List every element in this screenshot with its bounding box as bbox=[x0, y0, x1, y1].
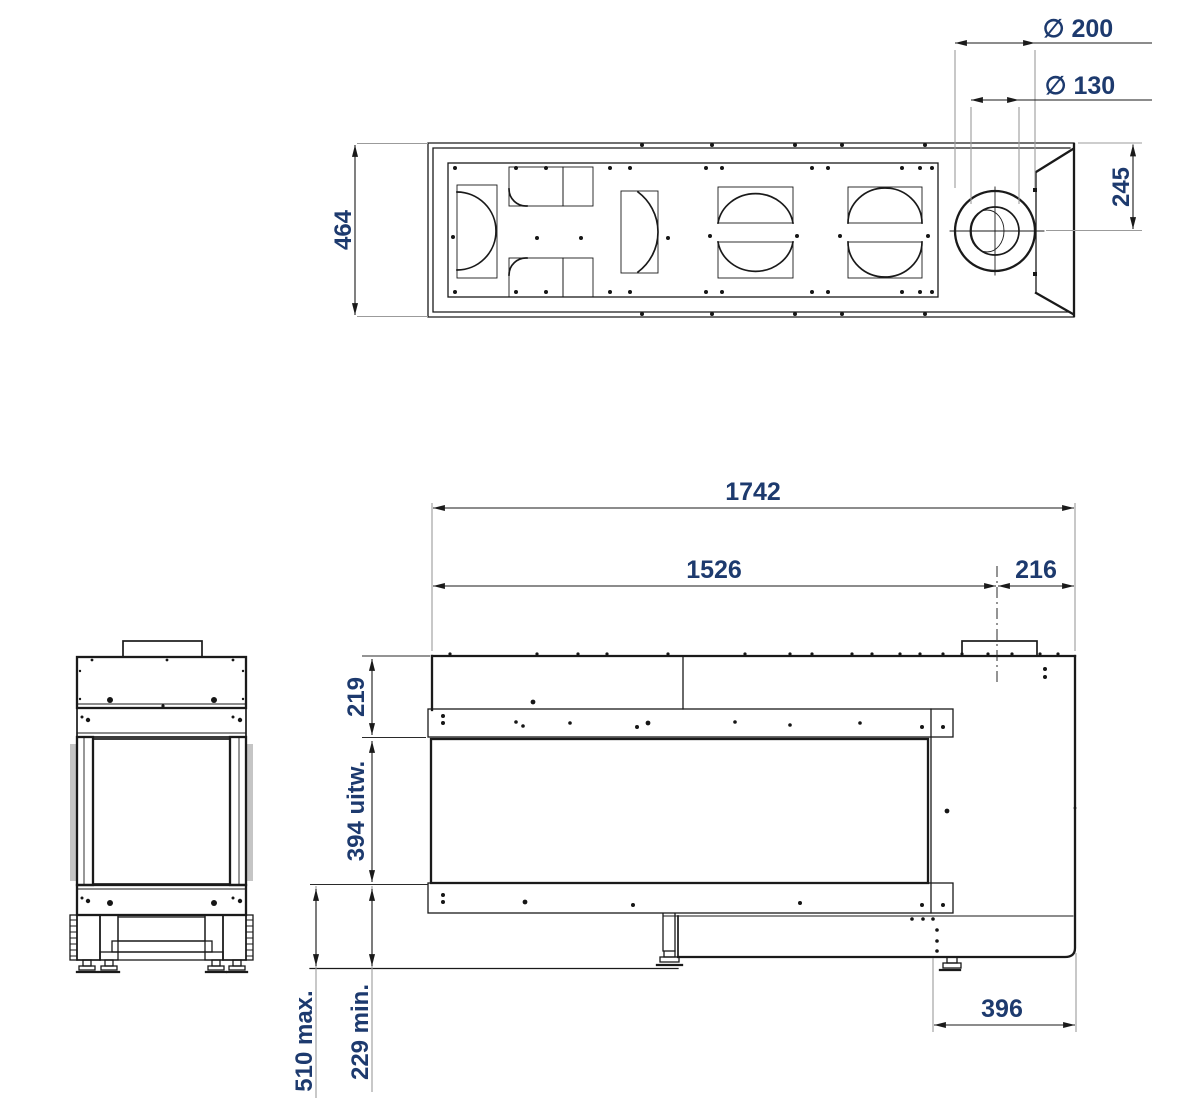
technical-drawing-page: ∅ 200 ∅ 130 464 245 1742 1526 bbox=[0, 0, 1180, 1107]
dim-label-flue-from-top-edge: 245 bbox=[1108, 167, 1135, 207]
dim-label-dia-outer: ∅ 200 bbox=[1043, 15, 1113, 43]
dim-label-flue-from-right: 216 bbox=[1015, 556, 1057, 584]
dimensions-plan: ∅ 200 ∅ 130 464 245 bbox=[330, 15, 1152, 317]
side-view bbox=[310, 566, 1076, 970]
front-screw-dots bbox=[79, 659, 244, 906]
dim-top-to-window: 219 bbox=[343, 656, 430, 738]
plan-screw-dots bbox=[451, 143, 934, 316]
top-view bbox=[428, 143, 1074, 317]
plan-flue-collar bbox=[950, 187, 1044, 275]
dim-right-section-depth: 396 bbox=[933, 953, 1076, 1032]
dim-overall-length: 1742 bbox=[432, 478, 1075, 651]
dim-floor-max: 510 max. bbox=[291, 886, 318, 1098]
plan-right-glass-corner bbox=[1033, 149, 1073, 314]
side-flue-collar bbox=[962, 641, 1037, 656]
front-view bbox=[70, 641, 253, 972]
dim-flue-from-right: 216 bbox=[998, 556, 1074, 586]
burner-cutouts bbox=[457, 167, 922, 297]
front-flue-stub bbox=[123, 641, 202, 657]
dim-label-right-section-depth: 396 bbox=[981, 995, 1023, 1023]
dim-label-dia-inner: ∅ 130 bbox=[1045, 72, 1115, 100]
dim-window-height: 394 uitw. bbox=[310, 741, 428, 885]
dim-label-floor-min: 229 min. bbox=[347, 984, 374, 1080]
dimensions-side: 1742 1526 216 219 394 uitw. 510 max. bbox=[291, 478, 1076, 1098]
dim-plan-depth: 464 bbox=[330, 144, 428, 317]
fireplace-dimension-drawing: ∅ 200 ∅ 130 464 245 1742 1526 bbox=[0, 0, 1180, 1107]
dim-floor-min: 229 min. bbox=[347, 886, 374, 1092]
side-right-foot bbox=[940, 957, 961, 970]
dim-label-plan-depth: 464 bbox=[330, 209, 357, 250]
front-base bbox=[70, 915, 253, 972]
dim-label-top-to-window: 219 bbox=[343, 677, 370, 717]
front-glass-pane bbox=[93, 739, 230, 884]
dim-front-section-length: 1526 bbox=[433, 556, 996, 586]
dim-label-floor-max: 510 max. bbox=[291, 990, 318, 1091]
side-screw-dots bbox=[441, 652, 1076, 952]
side-glass-opening bbox=[431, 739, 928, 883]
dim-label-overall-length: 1742 bbox=[725, 478, 781, 506]
dim-label-front-section-length: 1526 bbox=[686, 556, 742, 584]
dim-label-window-height: 394 uitw. bbox=[343, 761, 370, 861]
front-adjustable-feet bbox=[77, 960, 247, 972]
